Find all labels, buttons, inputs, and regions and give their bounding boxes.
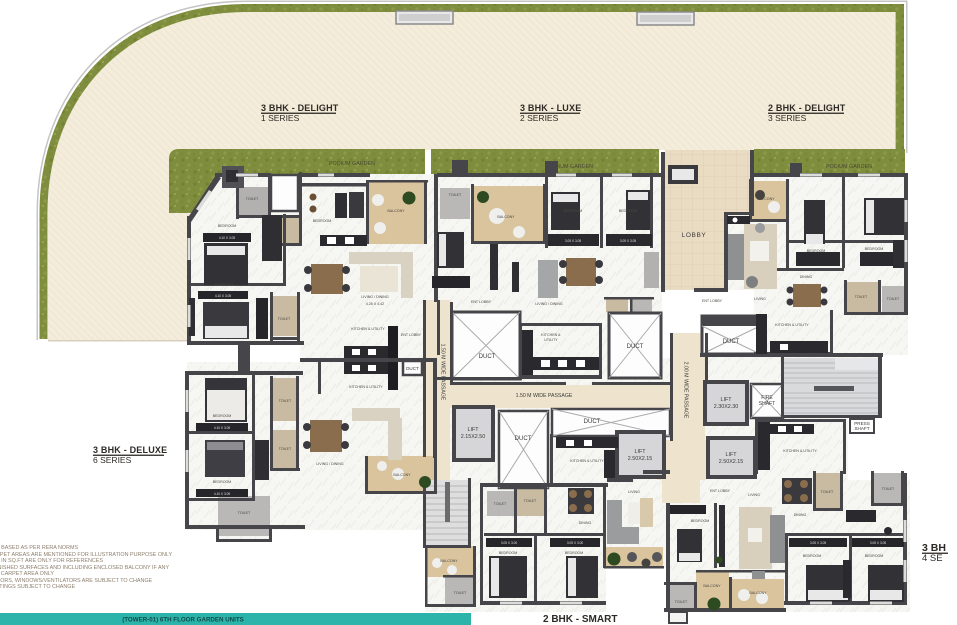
svg-text:2.00 M WIDE PASSAGE: 2.00 M WIDE PASSAGE <box>683 362 689 419</box>
svg-text:KITCHEN &: KITCHEN & <box>541 333 561 337</box>
svg-text:BEDROOM: BEDROOM <box>691 519 710 523</box>
svg-text:KITCHEN & UTILITY: KITCHEN & UTILITY <box>783 449 817 453</box>
svg-text:TOILET: TOILET <box>675 600 688 604</box>
svg-text:4 SE: 4 SE <box>922 553 943 564</box>
svg-text:2 BHK - SMART: 2 BHK - SMART <box>543 614 617 625</box>
svg-text:TOILET: TOILET <box>238 511 251 515</box>
svg-text:TOILET: TOILET <box>246 197 259 201</box>
svg-text:DUCT: DUCT <box>515 436 532 442</box>
svg-text:2 BHK - DELIGHT: 2 BHK - DELIGHT <box>768 103 846 113</box>
svg-text:DINING: DINING <box>800 275 813 279</box>
svg-text:BEDROOM: BEDROOM <box>499 551 518 555</box>
svg-text:PODIUM GARDEN: PODIUM GARDEN <box>826 164 872 170</box>
svg-text:1.50 M WIDE PASSAGE: 1.50 M WIDE PASSAGE <box>516 393 573 399</box>
svg-text:BEDROOM: BEDROOM <box>213 480 232 484</box>
svg-text:DUCT: DUCT <box>584 419 601 425</box>
svg-text:3.05 X 3.00: 3.05 X 3.00 <box>567 541 584 545</box>
svg-text:4.10 X 3.05: 4.10 X 3.05 <box>214 426 231 430</box>
svg-text:(TOWER-01) 6TH FLOOR GARDEN UN: (TOWER-01) 6TH FLOOR GARDEN UNITS <box>122 617 244 624</box>
svg-text:2.50X2.15: 2.50X2.15 <box>628 456 653 462</box>
svg-text:S IN SQ.FT ARE ONLY FOR REFERE: S IN SQ.FT ARE ONLY FOR REFERENCES <box>0 558 103 564</box>
svg-text:2 SERIES: 2 SERIES <box>520 113 559 123</box>
svg-text:TOILET: TOILET <box>449 193 462 197</box>
svg-text:BALCONY: BALCONY <box>393 473 411 477</box>
svg-text:TTINGS SUBJECT TO CHANGE: TTINGS SUBJECT TO CHANGE <box>0 584 75 590</box>
svg-text:1 SERIES: 1 SERIES <box>261 113 300 123</box>
svg-text:3.05 X 3.05: 3.05 X 3.05 <box>620 239 637 243</box>
svg-text:BALCONY: BALCONY <box>749 591 767 595</box>
svg-text:3.05 X 3.05: 3.05 X 3.05 <box>810 541 827 545</box>
svg-text:LIVING / DINING: LIVING / DINING <box>535 302 563 306</box>
svg-text:DINING: DINING <box>794 513 807 517</box>
svg-text:BEDROOM: BEDROOM <box>865 247 884 251</box>
svg-text:BALCONY: BALCONY <box>757 197 775 201</box>
svg-text:KITCHEN & UTILITY: KITCHEN & UTILITY <box>570 459 604 463</box>
svg-text:ENT LOBBY: ENT LOBBY <box>702 299 723 303</box>
svg-text:LIVING: LIVING <box>628 490 640 494</box>
svg-text:DUCT: DUCT <box>479 354 496 360</box>
svg-text:3 BHK - DELUXE: 3 BHK - DELUXE <box>93 445 167 455</box>
svg-text:TOILET: TOILET <box>454 591 467 595</box>
svg-text:3.05 X 3.05: 3.05 X 3.05 <box>870 541 887 545</box>
svg-text:BEDROOM: BEDROOM <box>803 554 822 558</box>
svg-text:BEDROOM: BEDROOM <box>619 209 638 213</box>
svg-text:LIFT: LIFT <box>725 452 737 458</box>
svg-text:1.50 M WIDE PASSAGE: 1.50 M WIDE PASSAGE <box>440 344 446 401</box>
svg-text:4.10 X 3.05: 4.10 X 3.05 <box>214 492 231 496</box>
svg-text:BALCONY: BALCONY <box>703 584 721 588</box>
svg-text:2.50X2.15: 2.50X2.15 <box>719 459 744 465</box>
svg-text:4.26 X 4.42: 4.26 X 4.42 <box>366 302 384 306</box>
svg-text:3 SERIES: 3 SERIES <box>768 113 807 123</box>
svg-text:BEDROOM: BEDROOM <box>215 283 234 287</box>
svg-text:TOILET: TOILET <box>279 447 292 451</box>
svg-text:TOILET: TOILET <box>821 490 834 494</box>
svg-text:KITCHEN & UTILITY: KITCHEN & UTILITY <box>775 323 809 327</box>
svg-text:LIFT: LIFT <box>720 397 732 403</box>
svg-text:KITCHEN & UTILITY: KITCHEN & UTILITY <box>349 385 383 389</box>
svg-text:BEDROOM: BEDROOM <box>213 414 232 418</box>
svg-text:3 BHK - DELIGHT: 3 BHK - DELIGHT <box>261 103 339 113</box>
svg-text:BEDROOM: BEDROOM <box>807 249 826 253</box>
svg-text:DUCT: DUCT <box>406 366 419 371</box>
svg-text:TOILET: TOILET <box>524 499 537 503</box>
svg-text:DINING: DINING <box>579 521 592 525</box>
svg-text:LIVING / DINING: LIVING / DINING <box>316 462 344 466</box>
svg-text:E BASED AS PER RERA NORMS: E BASED AS PER RERA NORMS <box>0 545 78 551</box>
svg-text:BALCONY: BALCONY <box>440 559 458 563</box>
svg-text:BEDROOM: BEDROOM <box>865 554 884 558</box>
svg-text:4.10 X 3.05: 4.10 X 3.05 <box>219 236 236 240</box>
svg-text:TOILET: TOILET <box>887 297 900 301</box>
svg-text:TOILET: TOILET <box>855 295 868 299</box>
svg-text:UTILITY: UTILITY <box>544 338 558 342</box>
svg-text:TOILET: TOILET <box>279 399 292 403</box>
svg-text:BEDROOM: BEDROOM <box>565 551 584 555</box>
svg-text:TOILET: TOILET <box>882 487 895 491</box>
svg-text:LIVING / DINING: LIVING / DINING <box>361 295 389 299</box>
svg-text:BEDROOM: BEDROOM <box>564 209 583 213</box>
svg-text:ENT LOBBY: ENT LOBBY <box>710 489 731 493</box>
svg-text:BEDROOM: BEDROOM <box>313 219 332 223</box>
svg-text:LIFT: LIFT <box>634 449 646 455</box>
svg-text:2.15X2.50: 2.15X2.50 <box>461 434 486 440</box>
svg-text:PODIUM GARDEN: PODIUM GARDEN <box>329 161 375 167</box>
svg-text:KITCHEN & UTILITY: KITCHEN & UTILITY <box>351 327 385 331</box>
svg-text:3.05 X 3.00: 3.05 X 3.00 <box>501 541 518 545</box>
svg-text:4.10 X 3.05: 4.10 X 3.05 <box>215 294 232 298</box>
svg-text:TOILET: TOILET <box>278 317 291 321</box>
svg-text:ENT LOBBY: ENT LOBBY <box>401 333 422 337</box>
svg-text:BALCONY: BALCONY <box>497 215 515 219</box>
svg-text:DUCT: DUCT <box>723 339 740 345</box>
svg-text:LIFT: LIFT <box>467 427 479 433</box>
svg-text:6 SERIES: 6 SERIES <box>93 455 132 465</box>
svg-text:LIVING: LIVING <box>748 493 760 497</box>
svg-text:LIVING: LIVING <box>754 297 766 301</box>
svg-text:3 BHK - LUXE: 3 BHK - LUXE <box>520 103 581 113</box>
svg-text:TOILET: TOILET <box>494 502 507 506</box>
svg-text:BEDROOM: BEDROOM <box>218 224 237 228</box>
svg-text:A CARPET AREA ONLY: A CARPET AREA ONLY <box>0 571 54 577</box>
svg-text:DUCT: DUCT <box>627 344 644 350</box>
svg-text:BALCONY: BALCONY <box>387 209 405 213</box>
svg-text:LOBBY: LOBBY <box>682 232 707 239</box>
svg-text:3.05 X 3.05: 3.05 X 3.05 <box>565 239 582 243</box>
svg-text:ENT LOBBY: ENT LOBBY <box>471 300 492 304</box>
svg-text:2.30X2.30: 2.30X2.30 <box>714 404 739 410</box>
svg-text:SHAFT: SHAFT <box>759 401 775 407</box>
svg-text:SHAFT: SHAFT <box>854 426 869 431</box>
